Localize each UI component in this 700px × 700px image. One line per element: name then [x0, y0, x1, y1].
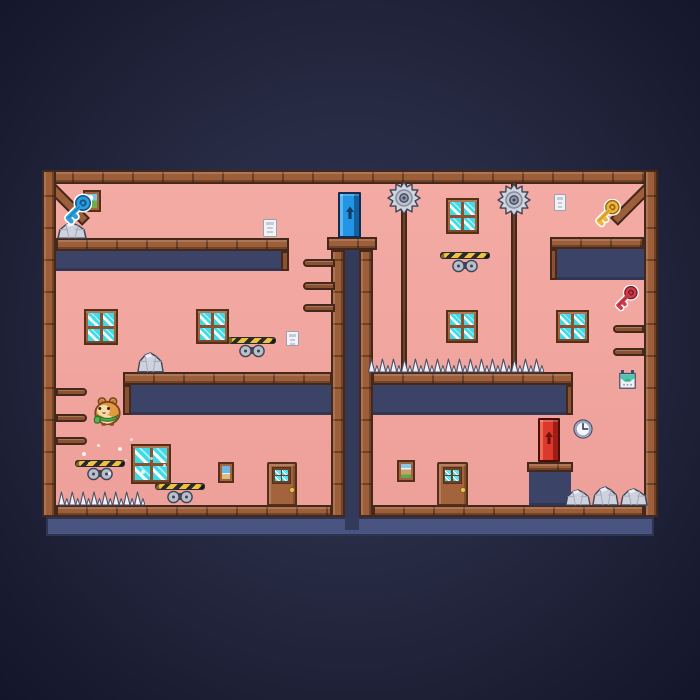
painting-beach: [218, 462, 234, 483]
hazard-bar: [75, 460, 125, 467]
window: [196, 309, 229, 344]
window: [84, 309, 118, 345]
sparkle-particle: [150, 457, 153, 460]
rock: [620, 488, 648, 506]
sparkle-particle: [141, 470, 145, 474]
painting-mountain: [397, 460, 415, 482]
saw-blade-right: [497, 183, 531, 217]
sparkle-particle: [108, 472, 111, 475]
ledge: [56, 437, 87, 445]
sparkle-particle: [82, 452, 86, 456]
red-key[interactable]: [611, 285, 639, 312]
floor-spikes: [58, 491, 145, 506]
sparkle-particle: [88, 462, 90, 464]
sparkle-particle: [130, 438, 133, 441]
hazard-bar: [440, 252, 490, 259]
ledge: [56, 388, 87, 396]
note-paper: [286, 331, 299, 346]
rock: [137, 352, 164, 373]
sparkle-particle: [125, 459, 127, 461]
red-exit-door[interactable]: [538, 418, 560, 462]
hamster-player[interactable]: [92, 395, 123, 426]
hazard-bar: [228, 337, 276, 344]
blue-key[interactable]: [60, 192, 92, 228]
wall-clock: [573, 419, 593, 439]
hazard-bar: [155, 483, 205, 490]
yellow-key[interactable]: [591, 199, 621, 228]
window: [556, 310, 589, 343]
wooden-door[interactable]: [267, 462, 297, 506]
wooden-door[interactable]: [437, 462, 468, 506]
window: [446, 198, 479, 234]
saw-blade-left: [387, 181, 421, 215]
platform-spikes: [368, 358, 544, 373]
sparkle-particle: [97, 444, 100, 447]
sparkle-particle: [163, 464, 166, 467]
ledge: [303, 282, 335, 290]
sparkle-particle: [118, 447, 122, 451]
ledge: [613, 348, 644, 356]
rock: [565, 489, 591, 506]
game-canvas: [0, 0, 700, 700]
sprite-layer: [0, 0, 700, 700]
ledge: [613, 325, 644, 333]
blue-exit-door[interactable]: [338, 192, 361, 238]
ledge: [303, 259, 335, 267]
rock: [592, 486, 619, 506]
ledge: [56, 414, 87, 422]
note-paper: [263, 219, 277, 237]
window: [446, 310, 478, 343]
hanging-sign: [619, 370, 636, 389]
note-paper: [554, 194, 566, 211]
ledge: [303, 304, 335, 312]
